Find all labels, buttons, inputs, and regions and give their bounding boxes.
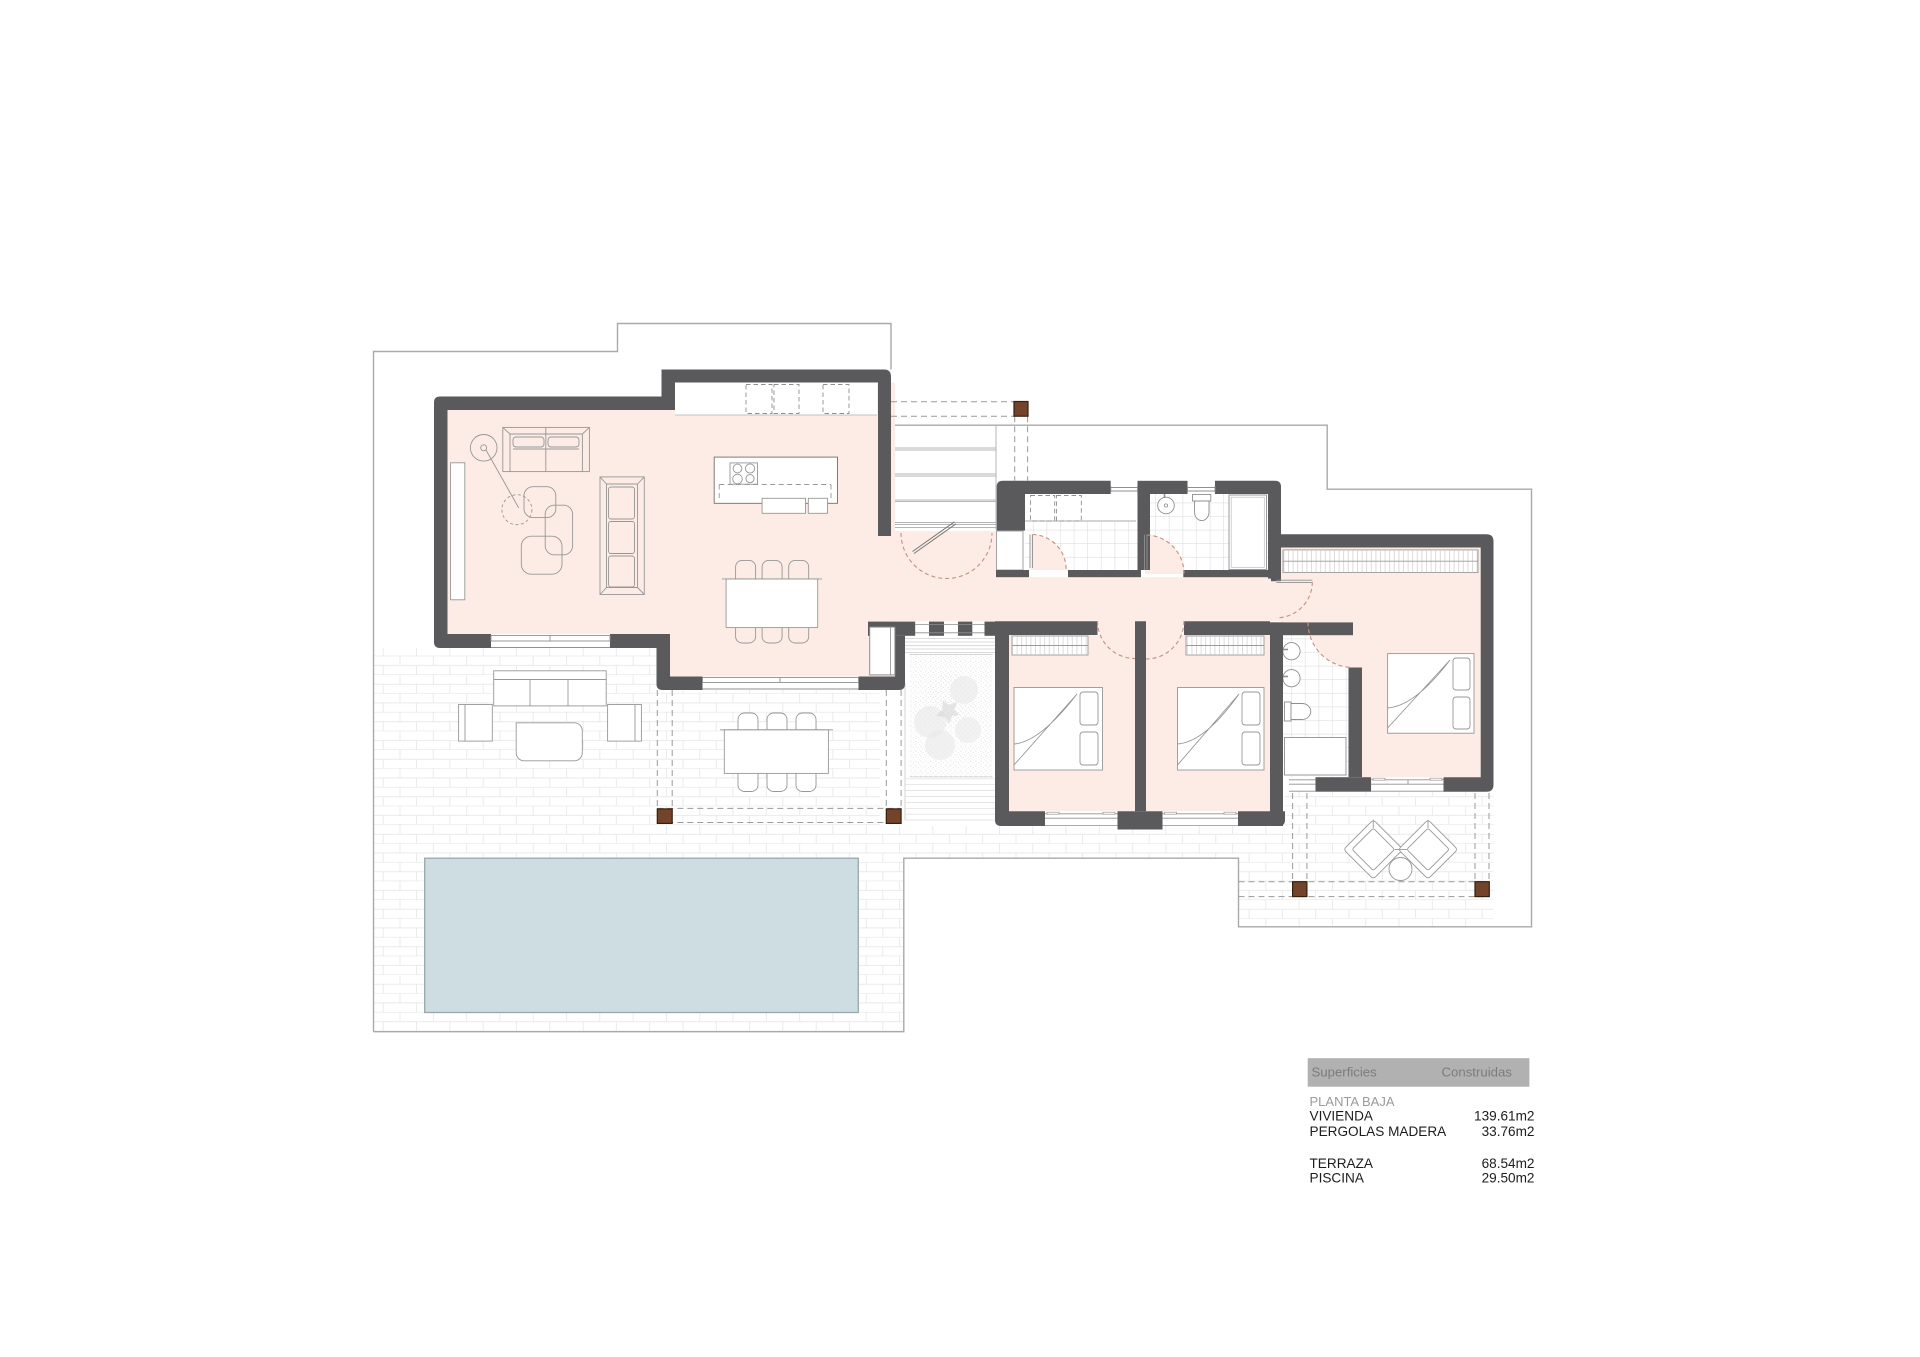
svg-text:Construidas: Construidas	[1442, 1065, 1513, 1080]
svg-text:139.61m2: 139.61m2	[1474, 1109, 1534, 1124]
svg-text:68.54m2: 68.54m2	[1482, 1156, 1535, 1171]
svg-text:VIVIENDA: VIVIENDA	[1310, 1109, 1374, 1124]
svg-text:29.50m2: 29.50m2	[1482, 1171, 1535, 1186]
svg-text:PLANTA BAJA: PLANTA BAJA	[1310, 1094, 1395, 1109]
svg-text:33.76m2: 33.76m2	[1482, 1124, 1535, 1139]
svg-text:TERRAZA: TERRAZA	[1310, 1156, 1374, 1171]
svg-text:PERGOLAS MADERA: PERGOLAS MADERA	[1310, 1124, 1448, 1139]
svg-text:Superficies: Superficies	[1312, 1065, 1378, 1080]
svg-text:PISCINA: PISCINA	[1310, 1171, 1365, 1186]
